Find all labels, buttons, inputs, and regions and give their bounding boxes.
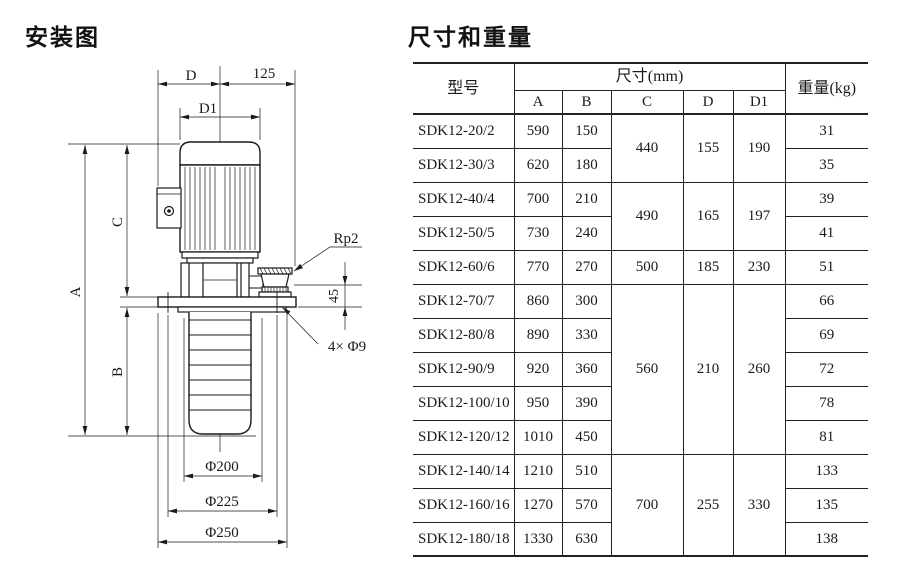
cell-c: 500 [611, 250, 683, 284]
label-dim-125: 125 [253, 66, 276, 82]
header-col-d1: D1 [733, 90, 785, 114]
label-dim-d1: D1 [199, 101, 217, 117]
header-col-b: B [562, 90, 611, 114]
cell-d1: 230 [733, 250, 785, 284]
table-row: SDK12-70/7 860 300 560 210 260 66 [413, 284, 868, 318]
cell-b: 570 [562, 488, 611, 522]
header-col-c: C [611, 90, 683, 114]
header-row-1: 型号 尺寸(mm) 重量(kg) [413, 63, 868, 90]
cell-b: 630 [562, 522, 611, 556]
cell-b: 210 [562, 182, 611, 216]
cell-c: 560 [611, 284, 683, 454]
cell-a: 1010 [514, 420, 562, 454]
cell-d1: 190 [733, 114, 785, 182]
cell-weight: 72 [785, 352, 868, 386]
motor [180, 142, 260, 263]
cell-model: SDK12-80/8 [413, 318, 514, 352]
cell-model: SDK12-50/5 [413, 216, 514, 250]
cell-model: SDK12-180/18 [413, 522, 514, 556]
cell-a: 890 [514, 318, 562, 352]
cell-a: 1210 [514, 454, 562, 488]
table-row: SDK12-40/4 700 210 490 165 197 39 [413, 182, 868, 216]
label-dim-45: 45 [327, 289, 342, 303]
cell-a: 1330 [514, 522, 562, 556]
flange-holes-leader [282, 307, 318, 344]
cell-a: 590 [514, 114, 562, 148]
cell-b: 450 [562, 420, 611, 454]
cell-d: 255 [683, 454, 733, 556]
label-phi250: Φ250 [205, 525, 238, 541]
discharge-port [258, 268, 292, 297]
cell-b: 150 [562, 114, 611, 148]
cell-b: 270 [562, 250, 611, 284]
header-weight: 重量(kg) [785, 63, 868, 114]
dimension-125 [220, 82, 295, 87]
cell-a: 700 [514, 182, 562, 216]
cell-b: 360 [562, 352, 611, 386]
cell-c: 490 [611, 182, 683, 250]
cell-b: 510 [562, 454, 611, 488]
cell-b: 180 [562, 148, 611, 182]
cell-model: SDK12-160/16 [413, 488, 514, 522]
header-model: 型号 [413, 63, 514, 114]
cell-model: SDK12-120/12 [413, 420, 514, 454]
label-dim-a: A [68, 286, 84, 297]
cell-weight: 39 [785, 182, 868, 216]
dimensions-table: 型号 尺寸(mm) 重量(kg) A B C D D1 SDK12-20/2 5… [413, 62, 868, 557]
cell-a: 860 [514, 284, 562, 318]
cell-c: 440 [611, 114, 683, 182]
cell-a: 920 [514, 352, 562, 386]
cell-a: 770 [514, 250, 562, 284]
cell-c: 700 [611, 454, 683, 556]
cell-model: SDK12-90/9 [413, 352, 514, 386]
cell-d: 185 [683, 250, 733, 284]
installation-diagram: D 125 D1 A C B Rp2 45 4× Φ9 Φ200 Φ225 Φ2… [0, 0, 410, 570]
cell-a: 1270 [514, 488, 562, 522]
cell-weight: 78 [785, 386, 868, 420]
cell-weight: 133 [785, 454, 868, 488]
cell-weight: 35 [785, 148, 868, 182]
cell-weight: 135 [785, 488, 868, 522]
cell-model: SDK12-40/4 [413, 182, 514, 216]
cell-model: SDK12-100/10 [413, 386, 514, 420]
label-dim-b: B [110, 367, 126, 377]
cell-model: SDK12-140/14 [413, 454, 514, 488]
cell-d: 165 [683, 182, 733, 250]
cell-a: 730 [514, 216, 562, 250]
cell-d1: 197 [733, 182, 785, 250]
table-row: SDK12-60/6 770 270 500 185 230 51 [413, 250, 868, 284]
cell-b: 300 [562, 284, 611, 318]
header-col-d: D [683, 90, 733, 114]
label-rp2: Rp2 [333, 231, 358, 247]
cell-d1: 330 [733, 454, 785, 556]
cell-b: 330 [562, 318, 611, 352]
label-dim-d: D [186, 68, 197, 84]
cell-model: SDK12-60/6 [413, 250, 514, 284]
label-phi200: Φ200 [205, 459, 238, 475]
table-title: 尺寸和重量 [408, 18, 533, 52]
cell-weight: 51 [785, 250, 868, 284]
cell-d: 210 [683, 284, 733, 454]
label-flange-holes: 4× Φ9 [328, 339, 366, 355]
junction-box [157, 188, 181, 228]
pump-head [181, 263, 263, 297]
header-col-a: A [514, 90, 562, 114]
catalog-page: 安装图 尺寸和重量 [0, 0, 900, 570]
cell-weight: 69 [785, 318, 868, 352]
cell-model: SDK12-30/3 [413, 148, 514, 182]
cell-weight: 66 [785, 284, 868, 318]
cell-b: 390 [562, 386, 611, 420]
cell-d1: 260 [733, 284, 785, 454]
label-phi225: Φ225 [205, 494, 238, 510]
cell-model: SDK12-70/7 [413, 284, 514, 318]
cell-a: 620 [514, 148, 562, 182]
rp2-leader [294, 247, 362, 271]
table-row: SDK12-140/14 1210 510 700 255 330 133 [413, 454, 868, 488]
cell-a: 950 [514, 386, 562, 420]
cell-weight: 138 [785, 522, 868, 556]
cell-d: 155 [683, 114, 733, 182]
cell-weight: 31 [785, 114, 868, 148]
pump-barrel [189, 312, 251, 434]
cell-model: SDK12-20/2 [413, 114, 514, 148]
header-size-group: 尺寸(mm) [514, 63, 785, 90]
cell-b: 240 [562, 216, 611, 250]
cell-weight: 81 [785, 420, 868, 454]
table-row: SDK12-20/2 590 150 440 155 190 31 [413, 114, 868, 148]
cell-weight: 41 [785, 216, 868, 250]
label-dim-c: C [110, 217, 126, 227]
